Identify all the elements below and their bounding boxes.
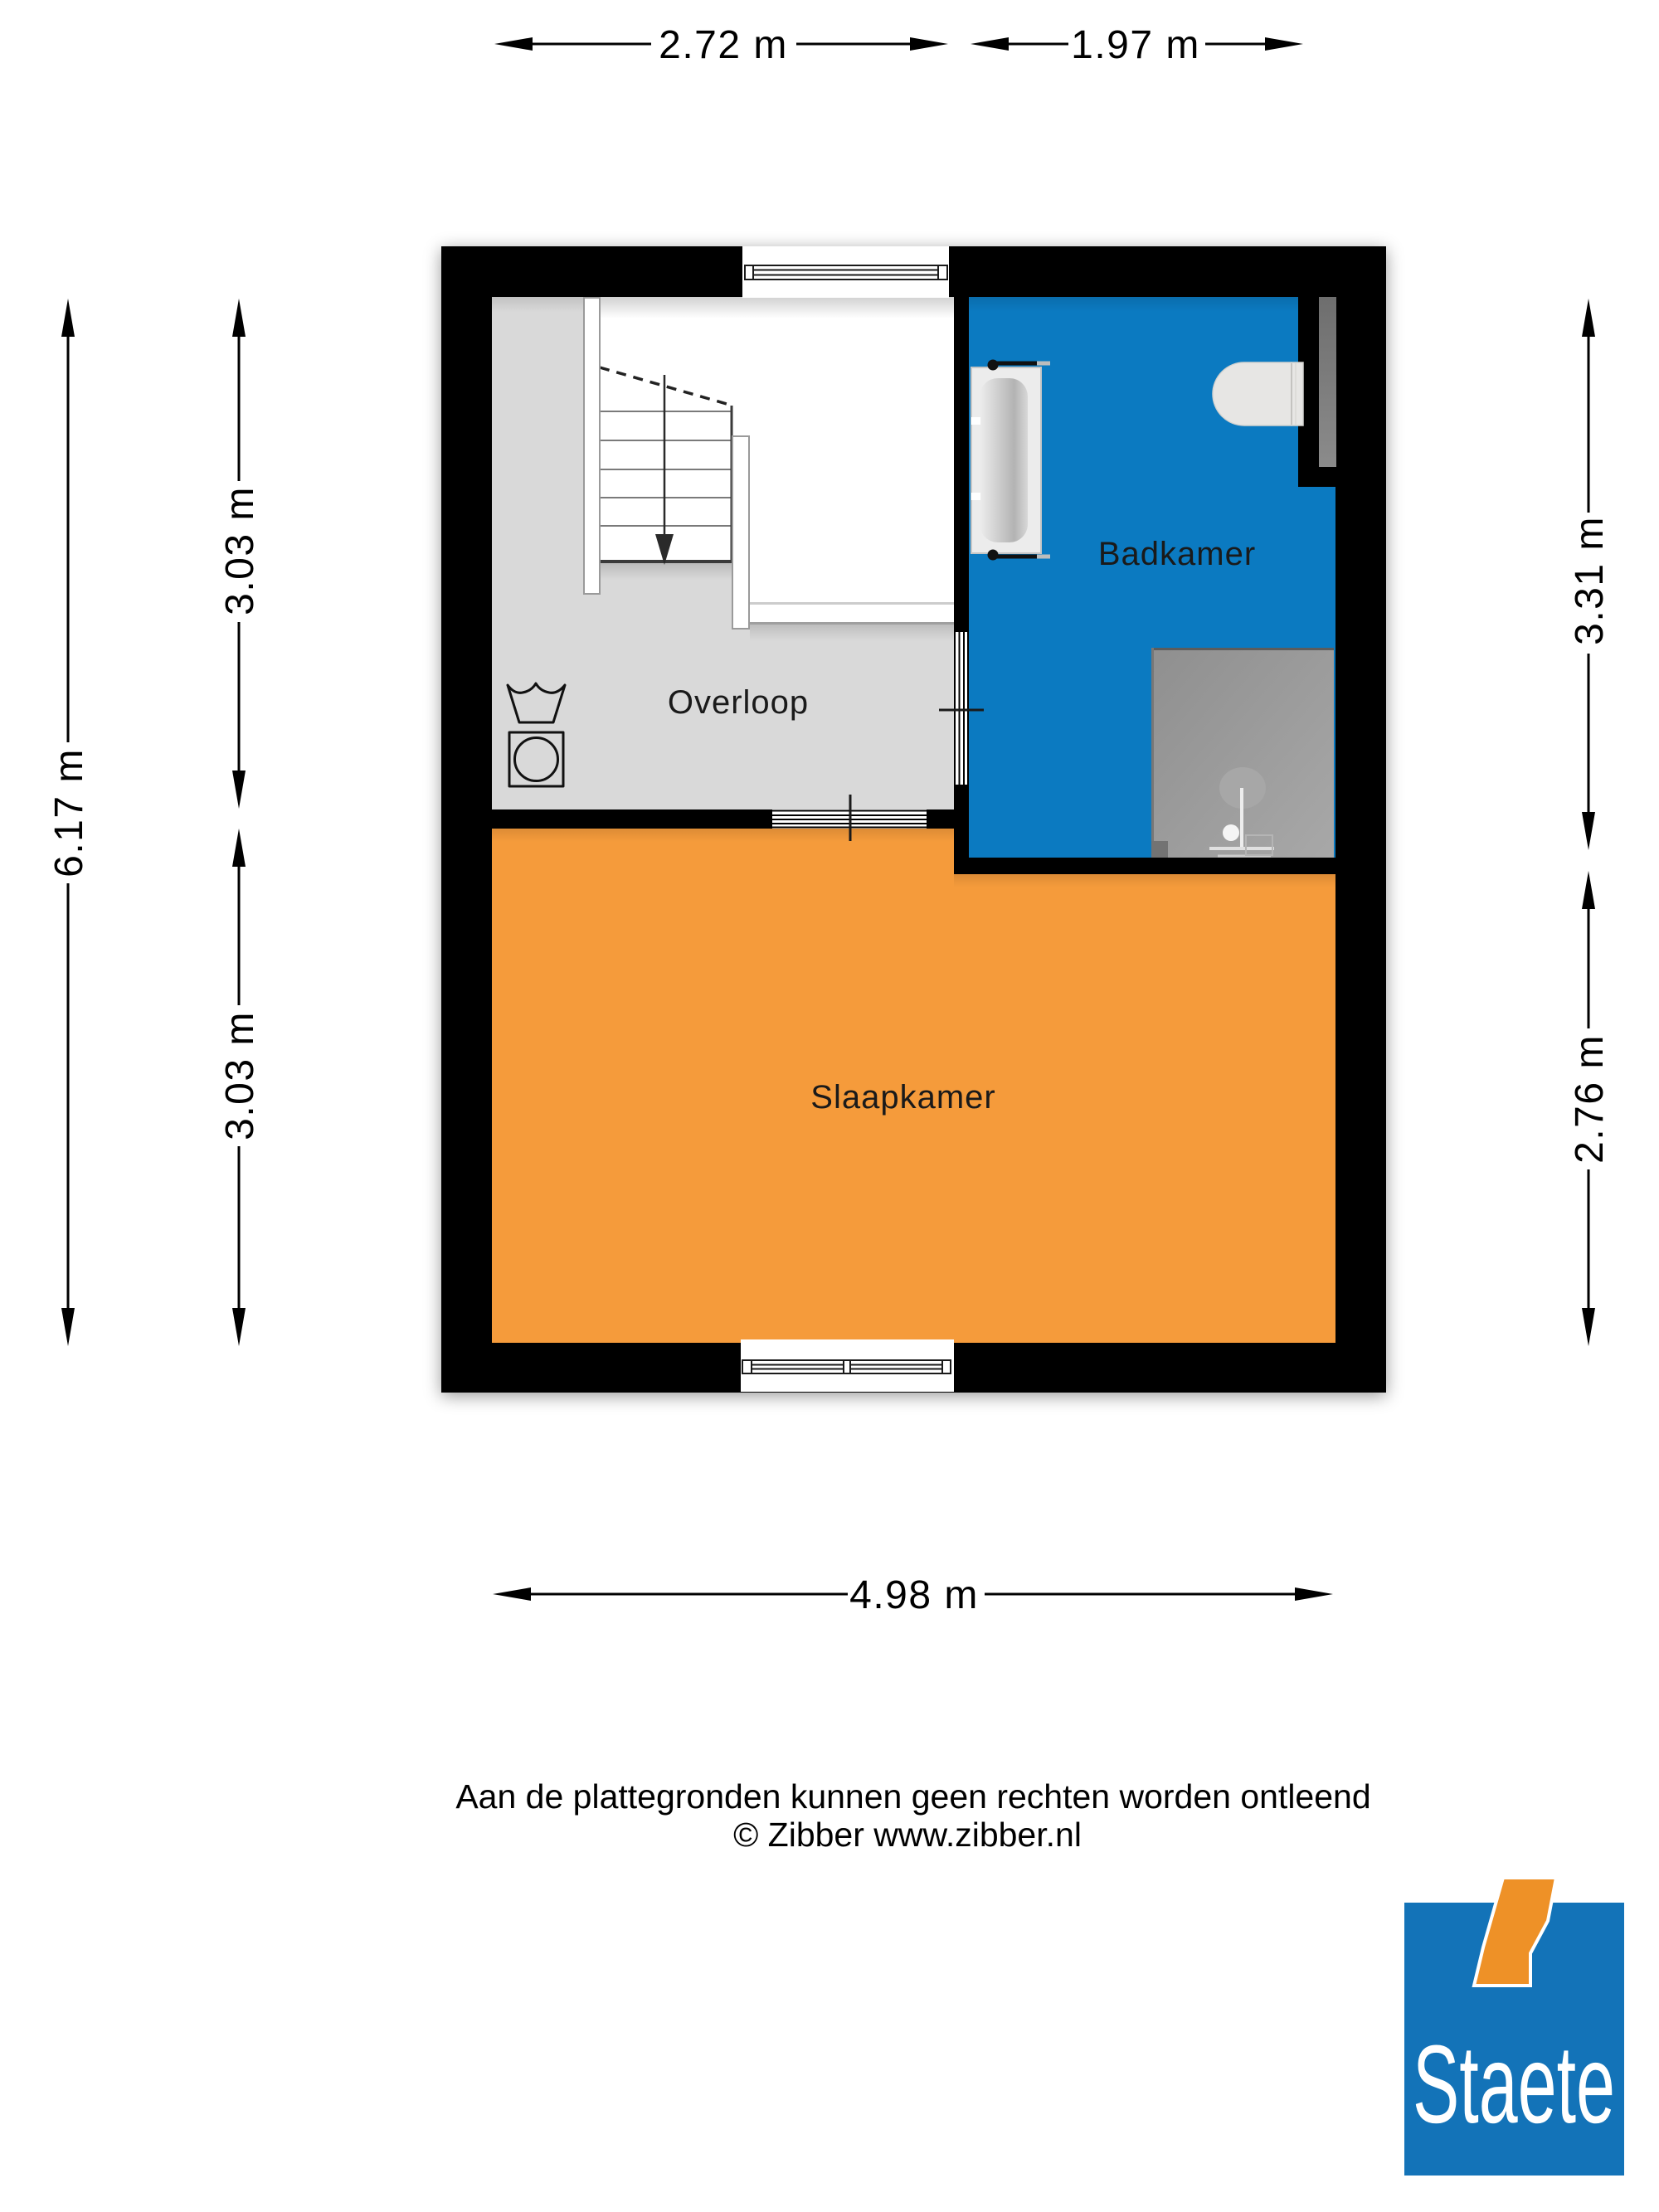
svg-text:2.72 m: 2.72 m [659, 23, 788, 67]
svg-text:Aan de plattegronden kunnen ge: Aan de plattegronden kunnen geen rechten… [455, 1777, 1370, 1816]
svg-text:6.17 m: 6.17 m [47, 748, 91, 878]
svg-text:3.31 m: 3.31 m [1568, 516, 1612, 645]
svg-text:4.98 m: 4.98 m [849, 1573, 979, 1617]
svg-text:Staete: Staete [1413, 2022, 1615, 2146]
svg-text:© Zibber www.zibber.nl: © Zibber www.zibber.nl [733, 1816, 1082, 1854]
svg-text:Badkamer: Badkamer [1098, 536, 1256, 572]
svg-text:2.76 m: 2.76 m [1568, 1034, 1612, 1164]
svg-text:1.97 m: 1.97 m [1071, 23, 1200, 67]
svg-text:3.03 m: 3.03 m [218, 486, 262, 615]
svg-text:Overloop: Overloop [668, 684, 809, 721]
svg-text:3.03 m: 3.03 m [218, 1011, 262, 1140]
svg-text:Slaapkamer: Slaapkamer [810, 1079, 995, 1116]
